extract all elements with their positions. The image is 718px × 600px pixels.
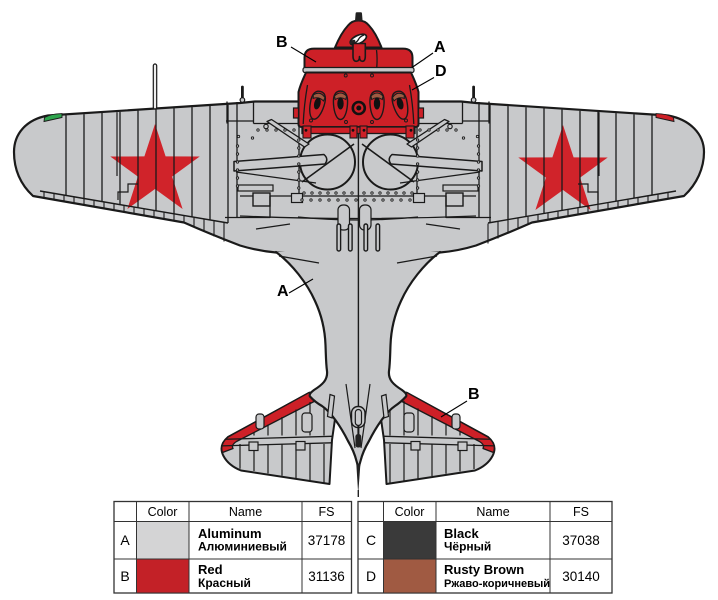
svg-text:Алюминиевый: Алюминиевый xyxy=(198,540,287,554)
svg-text:B: B xyxy=(276,34,288,51)
svg-text:Color: Color xyxy=(395,505,425,519)
svg-text:37038: 37038 xyxy=(562,533,600,548)
svg-text:D: D xyxy=(366,568,376,584)
svg-text:B: B xyxy=(468,386,480,403)
svg-text:Чёрный: Чёрный xyxy=(444,540,491,554)
svg-text:30140: 30140 xyxy=(562,569,600,584)
svg-text:Color: Color xyxy=(148,505,178,519)
svg-text:Red: Red xyxy=(198,562,223,577)
svg-text:C: C xyxy=(366,532,376,548)
svg-text:Ржаво-коричневый: Ржаво-коричневый xyxy=(444,578,550,590)
svg-text:31136: 31136 xyxy=(308,569,345,584)
svg-text:37178: 37178 xyxy=(308,533,346,548)
svg-text:A: A xyxy=(277,283,289,300)
svg-text:Красный: Красный xyxy=(198,576,251,590)
svg-text:Rusty Brown: Rusty Brown xyxy=(444,562,524,577)
svg-text:A: A xyxy=(434,39,446,56)
svg-text:A: A xyxy=(120,532,130,548)
svg-text:FS: FS xyxy=(573,505,589,519)
svg-text:B: B xyxy=(120,568,129,584)
svg-text:Name: Name xyxy=(229,505,262,519)
svg-text:FS: FS xyxy=(319,505,335,519)
svg-text:D: D xyxy=(435,63,447,80)
svg-text:Name: Name xyxy=(476,505,509,519)
